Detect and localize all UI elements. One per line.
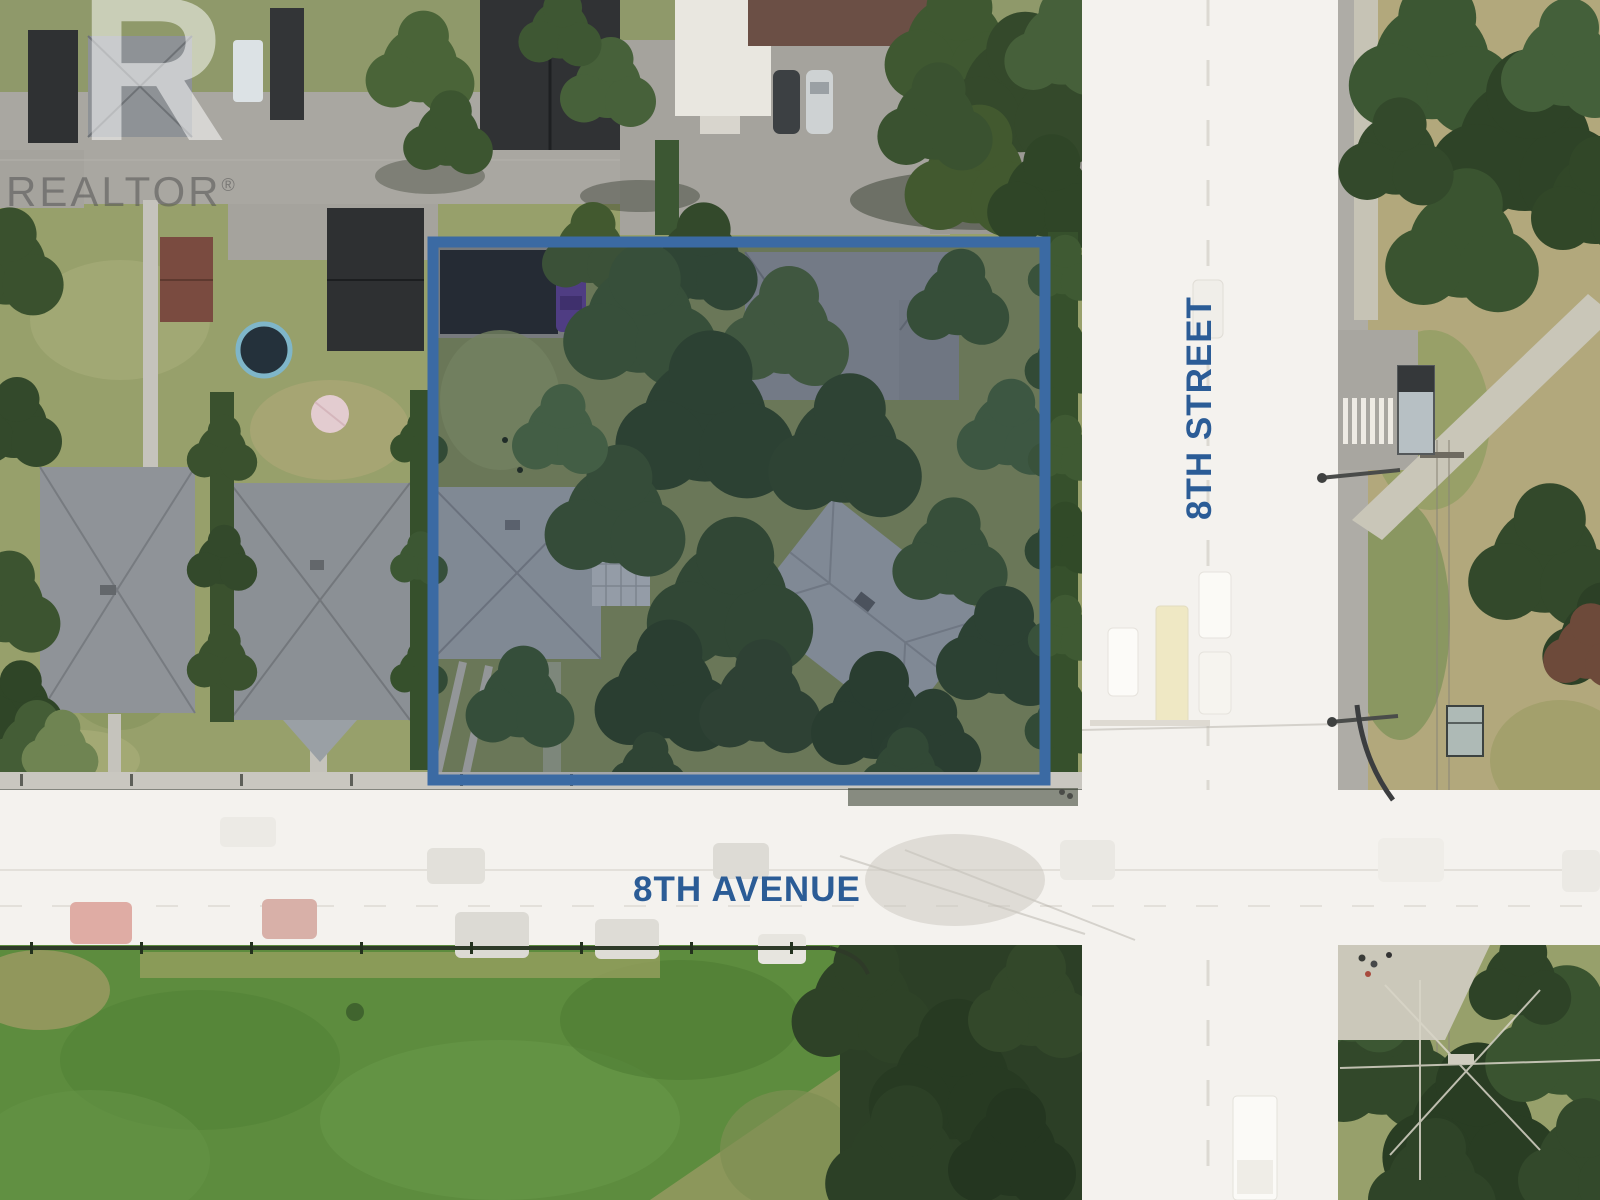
hip-roof-house-a	[40, 467, 195, 713]
aerial-photo: R REALTOR® 8TH STREET 8TH AVENUE	[0, 0, 1600, 1200]
parked-car-dark	[773, 70, 800, 134]
realtor-logo: R	[78, 0, 227, 172]
registered-trademark-symbol: ®	[222, 175, 235, 195]
sports-field	[0, 940, 860, 1200]
bus-shelter	[1398, 366, 1434, 454]
street-label-8th-street: 8TH STREET	[1180, 296, 1220, 520]
aerial-scene-art	[0, 0, 1600, 1200]
powerline-frame	[1448, 1054, 1474, 1064]
realtor-wordmark: REALTOR®	[6, 168, 235, 216]
parked-car-silver	[806, 70, 833, 134]
property-boundary-outline	[433, 242, 1045, 780]
trampoline	[238, 324, 290, 376]
trailer	[233, 40, 263, 102]
street-label-8th-avenue: 8TH AVENUE	[633, 870, 861, 910]
transit-shelter-south	[1447, 706, 1483, 756]
street-8th-road	[1082, 0, 1338, 1200]
